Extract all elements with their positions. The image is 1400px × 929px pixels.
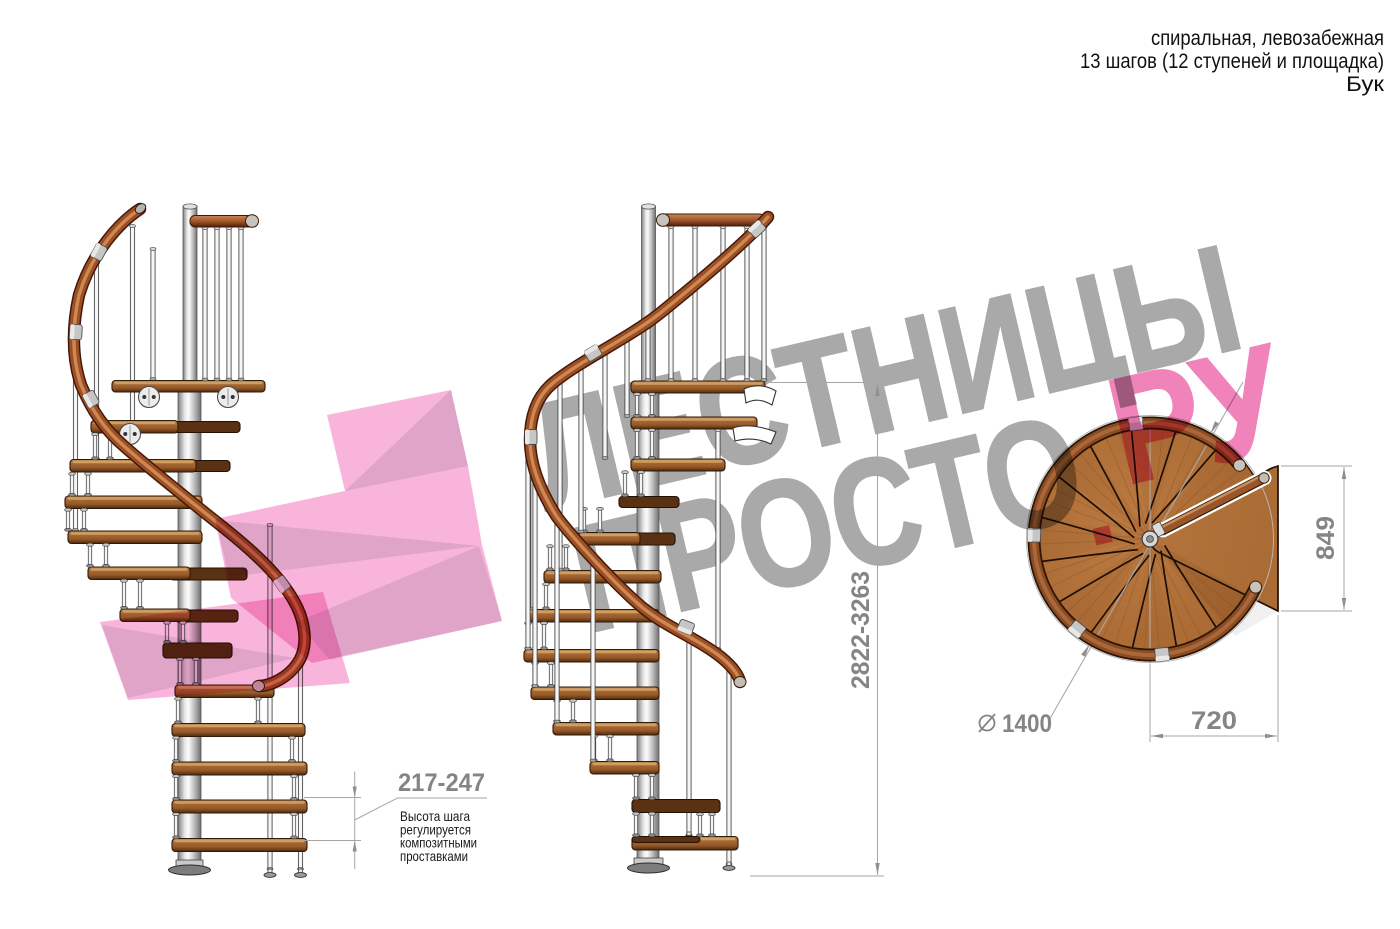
svg-text:217-247: 217-247 [398,769,485,797]
svg-text:спиральная, левозабежная: спиральная, левозабежная [1151,26,1384,50]
svg-text:1400: 1400 [1002,710,1052,738]
svg-text:849: 849 [1312,516,1340,560]
svg-text:13 шагов (12 ступеней и площад: 13 шагов (12 ступеней и площадка) [1080,49,1384,73]
svg-text:720: 720 [1191,707,1237,735]
svg-text:Бук: Бук [1346,72,1385,96]
svg-text:2822-3263: 2822-3263 [847,571,875,689]
svg-text:проставками: проставками [400,849,468,864]
